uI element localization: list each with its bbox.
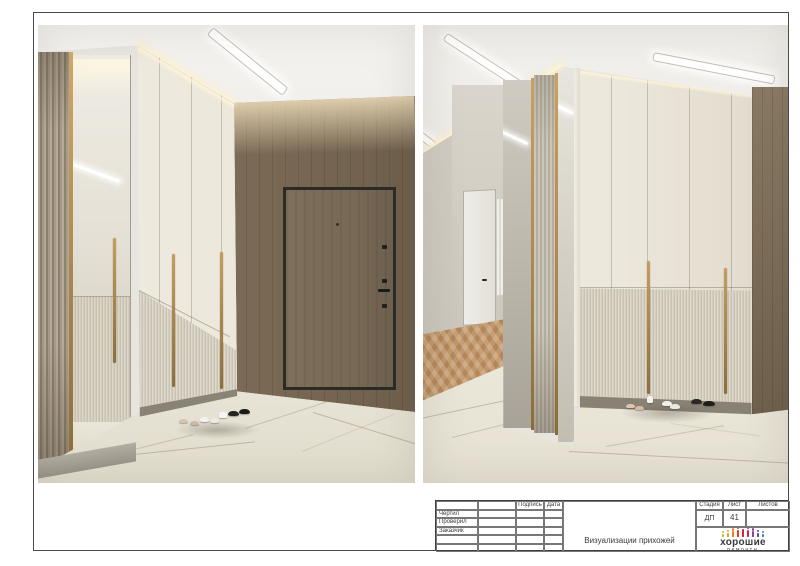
render-right-hallway-view [423,25,788,483]
floor-tile-joint [569,451,788,464]
mirror-reflected-led [558,104,573,114]
door-lock [382,279,387,283]
mirror [558,71,574,442]
shoes [691,399,702,404]
titleblock-header-sheet: Лист [723,501,746,510]
led-strip-icon [652,52,775,84]
logo-name: хорошие [720,538,766,548]
titleblock-header-date: Дата [544,501,563,510]
shoes-shadow [174,421,261,439]
shoes [703,401,715,406]
mirror [73,55,131,472]
person-icon [756,530,760,537]
entrance-door [283,187,396,391]
shoes [635,406,644,410]
stage-value: ДП [696,510,723,527]
shoes [670,404,680,409]
door-handle [378,289,390,292]
titleblock-empty-cell [436,501,478,510]
titleblock-header-signature: Подпись [516,501,544,510]
titleblock-empty-cell [516,535,544,544]
titleblock-empty-cell [544,544,563,553]
shoes [219,412,227,418]
title-block: Подпись Дата Визуализации прихожей Стади… [435,500,789,551]
titleblock-empty-cell [478,501,516,510]
shoes [647,396,653,403]
wardrobe-handle [220,252,223,389]
titleblock-empty-cell [544,510,563,519]
titleblock-empty-cell [544,527,563,536]
door-lock [382,245,387,249]
titleblock-empty-cell [478,544,516,553]
titleblock-empty-cell [544,518,563,527]
titleblock-empty-cell [478,527,516,536]
person-icon [726,530,730,537]
mirror-reflected-fluted-panel [73,296,130,422]
logo-people-icons [721,527,765,537]
titleblock-empty-cell [436,535,478,544]
titleblock-empty-cell [478,510,516,519]
slat-panel [534,75,556,432]
titleblock-label-checked-by: Проверил [436,518,478,527]
mirror-reflected-handle [113,238,116,363]
titleblock-header-stage: Стадия [696,501,723,510]
person-icon [741,527,745,537]
company-logo: хорошие ремонты [696,527,790,553]
shoes [179,419,188,423]
person-icon [751,528,755,537]
shoes [200,417,209,422]
titleblock-empty-cell [478,518,516,527]
cabinet-side-edge [574,69,579,408]
sheets-total [746,510,790,527]
titleblock-empty-cell [516,518,544,527]
titleblock-empty-cell [478,535,516,544]
titleblock-header-sheets: Листов [746,501,790,510]
drawing-sheet: Подпись Дата Визуализации прихожей Стади… [0,0,800,566]
mirror-reflected-led [503,129,528,144]
shoes [190,421,199,425]
person-icon [731,528,735,537]
mirror-reflected-led [73,163,119,184]
mirror-reflection-glow [73,59,130,97]
person-icon [721,531,725,537]
titleblock-empty-cell [516,544,544,553]
titleblock-empty-cell [436,544,478,553]
wood-wall-panel [752,87,789,414]
door-peephole [336,223,339,226]
shoes [228,411,239,416]
person-icon [761,531,765,537]
person-icon [736,527,740,537]
titleblock-empty-cell [516,510,544,519]
titleblock-label-client: Заказчик [436,527,478,536]
wardrobe-handle [724,268,727,394]
wardrobe-handle [172,254,175,387]
render-left-hallway-view [38,25,415,483]
wardrobe-handle [647,261,650,394]
shoes [626,404,635,408]
titleblock-empty-cell [516,527,544,536]
logo-subname: ремонты [727,548,759,552]
interior-door [463,189,496,326]
titleblock-label-drawn-by: Чертил [436,510,478,519]
shoes [239,409,250,414]
door-lock [382,304,387,308]
slat-panel [38,52,69,483]
shoes [210,418,219,423]
mirror [503,80,530,428]
interior-door-handle [482,279,487,281]
sheet-number: 41 [723,510,746,527]
titleblock-empty-cell [544,535,563,544]
led-strip-icon [206,27,288,96]
person-icon [746,527,750,537]
drawing-title: Визуализации прихожей [563,501,696,552]
